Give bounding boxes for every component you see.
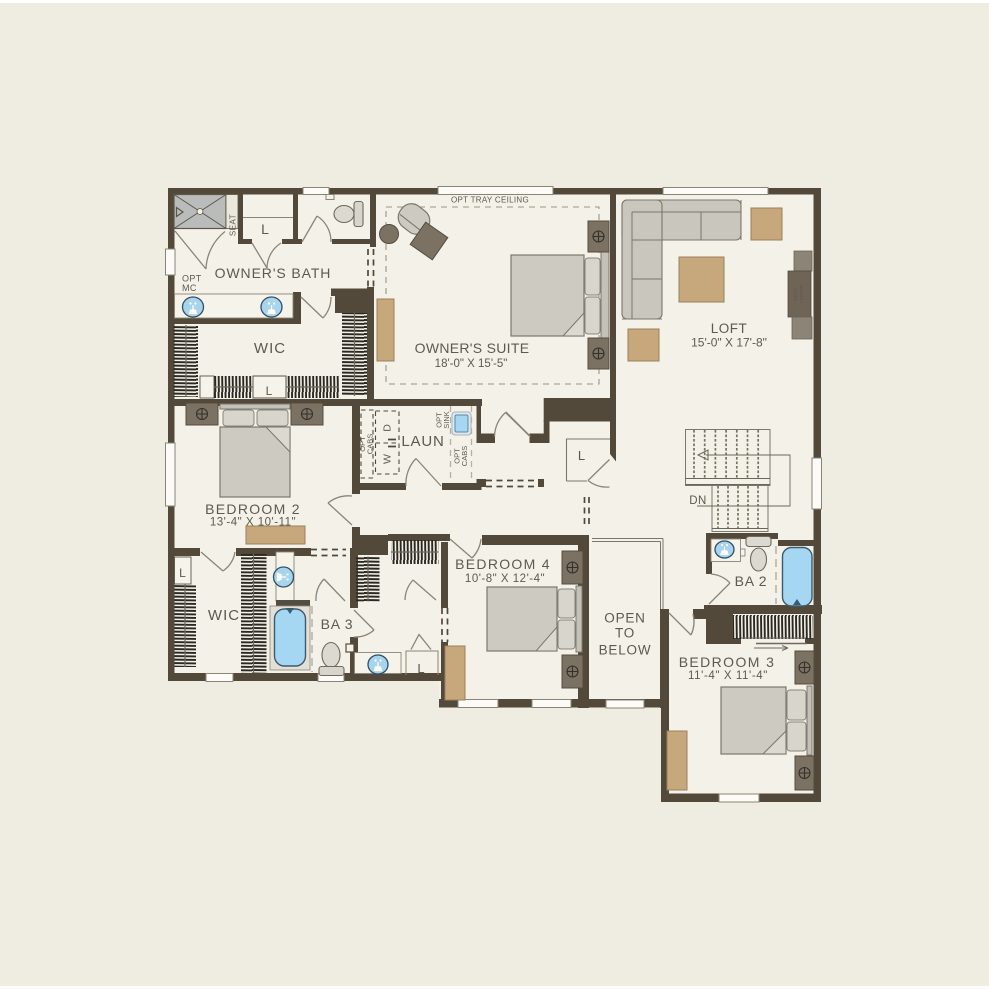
svg-text:DN: DN (689, 495, 707, 507)
svg-text:OPT: OPT (182, 274, 202, 284)
svg-text:L: L (417, 661, 424, 676)
svg-text:BA 2: BA 2 (735, 573, 768, 589)
svg-text:CABS: CABS (366, 434, 375, 454)
svg-text:CABS: CABS (460, 446, 469, 466)
svg-text:L: L (578, 448, 585, 463)
svg-text:WIC: WIC (254, 340, 286, 357)
svg-text:LOFT: LOFT (711, 321, 748, 336)
svg-text:13'-4" X 10'-11": 13'-4" X 10'-11" (210, 517, 296, 529)
svg-text:10'-8" X 12'-4": 10'-8" X 12'-4" (465, 573, 545, 585)
svg-text:MEDIA: MEDIA (793, 287, 798, 301)
svg-text:18'-0" X 15'-5": 18'-0" X 15'-5" (435, 358, 508, 370)
svg-text:CENTER: CENTER (799, 284, 804, 303)
svg-text:WIC: WIC (208, 607, 240, 624)
svg-text:OWNER'S SUITE: OWNER'S SUITE (415, 340, 530, 356)
svg-text:11'-4" X 11'-4": 11'-4" X 11'-4" (688, 670, 768, 682)
svg-text:L: L (179, 566, 186, 580)
svg-text:BELOW: BELOW (599, 643, 652, 658)
svg-text:SINK: SINK (442, 411, 451, 429)
svg-text:15'-0" X 17'-8": 15'-0" X 17'-8" (691, 336, 767, 350)
svg-text:OWNER'S BATH: OWNER'S BATH (215, 265, 332, 281)
svg-text:BEDROOM 3: BEDROOM 3 (679, 654, 776, 670)
svg-text:LAUN: LAUN (401, 433, 444, 450)
svg-text:OPT TRAY CEILING: OPT TRAY CEILING (451, 196, 529, 205)
svg-text:W: W (382, 454, 394, 464)
svg-text:MC: MC (182, 283, 197, 293)
svg-text:L: L (266, 384, 273, 398)
svg-text:BA 3: BA 3 (321, 616, 354, 632)
svg-text:D: D (382, 424, 394, 432)
svg-text:BEDROOM 4: BEDROOM 4 (455, 556, 551, 572)
svg-text:SEAT: SEAT (229, 214, 238, 236)
svg-text:BEDROOM 2: BEDROOM 2 (205, 501, 301, 517)
svg-text:TO: TO (615, 626, 635, 641)
svg-text:L: L (261, 221, 269, 237)
svg-text:OPEN: OPEN (604, 611, 645, 626)
